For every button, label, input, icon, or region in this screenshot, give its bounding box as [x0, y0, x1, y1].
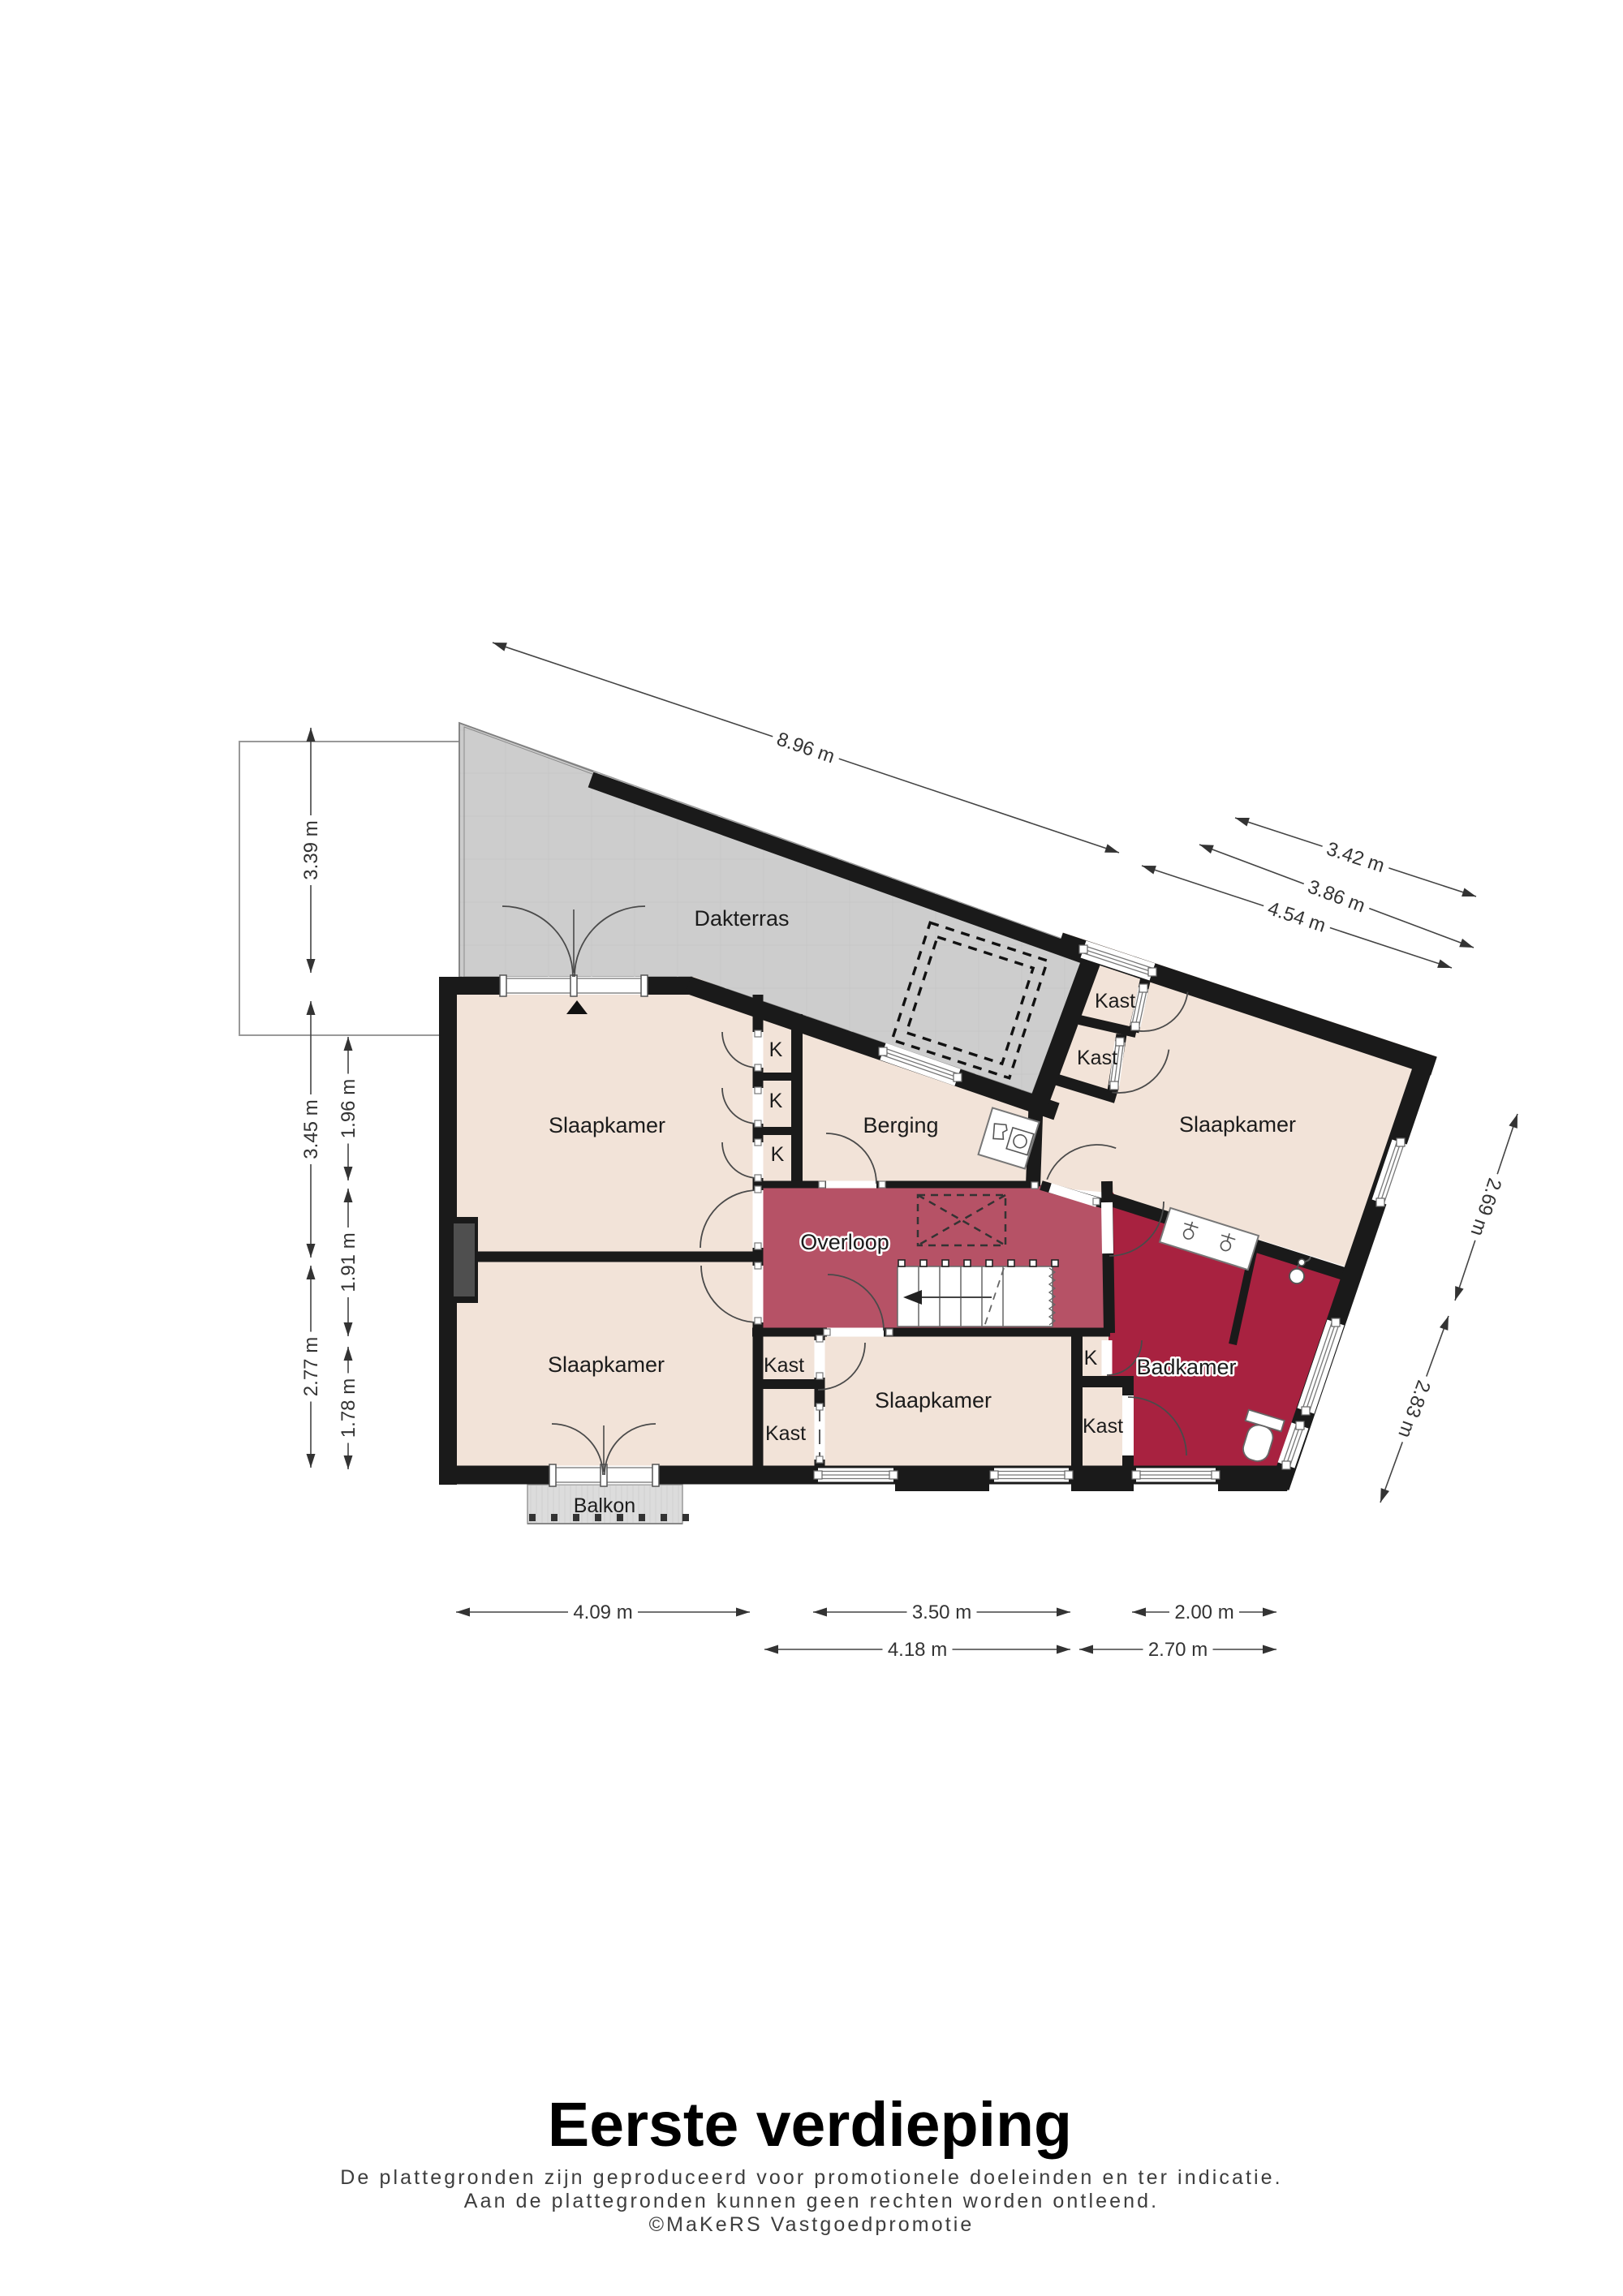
svg-text:4.09 m: 4.09 m	[573, 1602, 632, 1623]
svg-text:K: K	[1084, 1347, 1098, 1369]
svg-text:3.45 m: 3.45 m	[300, 1099, 322, 1159]
svg-text:Balkon: Balkon	[574, 1494, 635, 1517]
svg-text:Kast: Kast	[1083, 1415, 1123, 1438]
svg-text:Slaapkamer: Slaapkamer	[548, 1352, 665, 1377]
svg-text:Dakterras: Dakterras	[694, 906, 789, 931]
svg-text:Kast: Kast	[1095, 990, 1135, 1013]
svg-text:Badkamer: Badkamer	[1136, 1355, 1236, 1379]
svg-text:K: K	[769, 1090, 783, 1112]
svg-text:K: K	[771, 1143, 785, 1166]
svg-text:Kast: Kast	[765, 1422, 806, 1445]
svg-text:K: K	[769, 1038, 783, 1061]
svg-text:Overloop: Overloop	[800, 1230, 889, 1254]
svg-text:Slaapkamer: Slaapkamer	[1179, 1112, 1296, 1137]
svg-text:2.00 m: 2.00 m	[1174, 1602, 1233, 1623]
svg-text:Slaapkamer: Slaapkamer	[875, 1388, 992, 1412]
svg-text:1.96 m: 1.96 m	[338, 1079, 359, 1138]
svg-text:Kast: Kast	[764, 1354, 804, 1377]
svg-text:Eerste verdieping: Eerste verdieping	[548, 2090, 1072, 2160]
svg-text:3.39 m: 3.39 m	[300, 820, 322, 879]
svg-text:Berging: Berging	[863, 1113, 938, 1137]
svg-text:1.78 m: 1.78 m	[338, 1378, 359, 1438]
svg-text:1.91 m: 1.91 m	[338, 1232, 359, 1292]
svg-text:Kast: Kast	[1077, 1047, 1117, 1069]
svg-text:2.70 m: 2.70 m	[1148, 1639, 1208, 1661]
svg-text:De plattegronden zijn geproduc: De plattegronden zijn geproduceerd voor …	[340, 2166, 1282, 2189]
svg-text:Slaapkamer: Slaapkamer	[549, 1113, 665, 1137]
svg-text:4.18 m: 4.18 m	[888, 1639, 947, 1661]
svg-text:Aan de plattegronden kunnen ge: Aan de plattegronden kunnen geen rechten…	[464, 2190, 1159, 2212]
svg-text:3.50 m: 3.50 m	[912, 1602, 971, 1623]
svg-text:2.77 m: 2.77 m	[300, 1337, 322, 1396]
svg-text:©MaKeRS Vastgoedpromotie: ©MaKeRS Vastgoedpromotie	[649, 2213, 975, 2236]
